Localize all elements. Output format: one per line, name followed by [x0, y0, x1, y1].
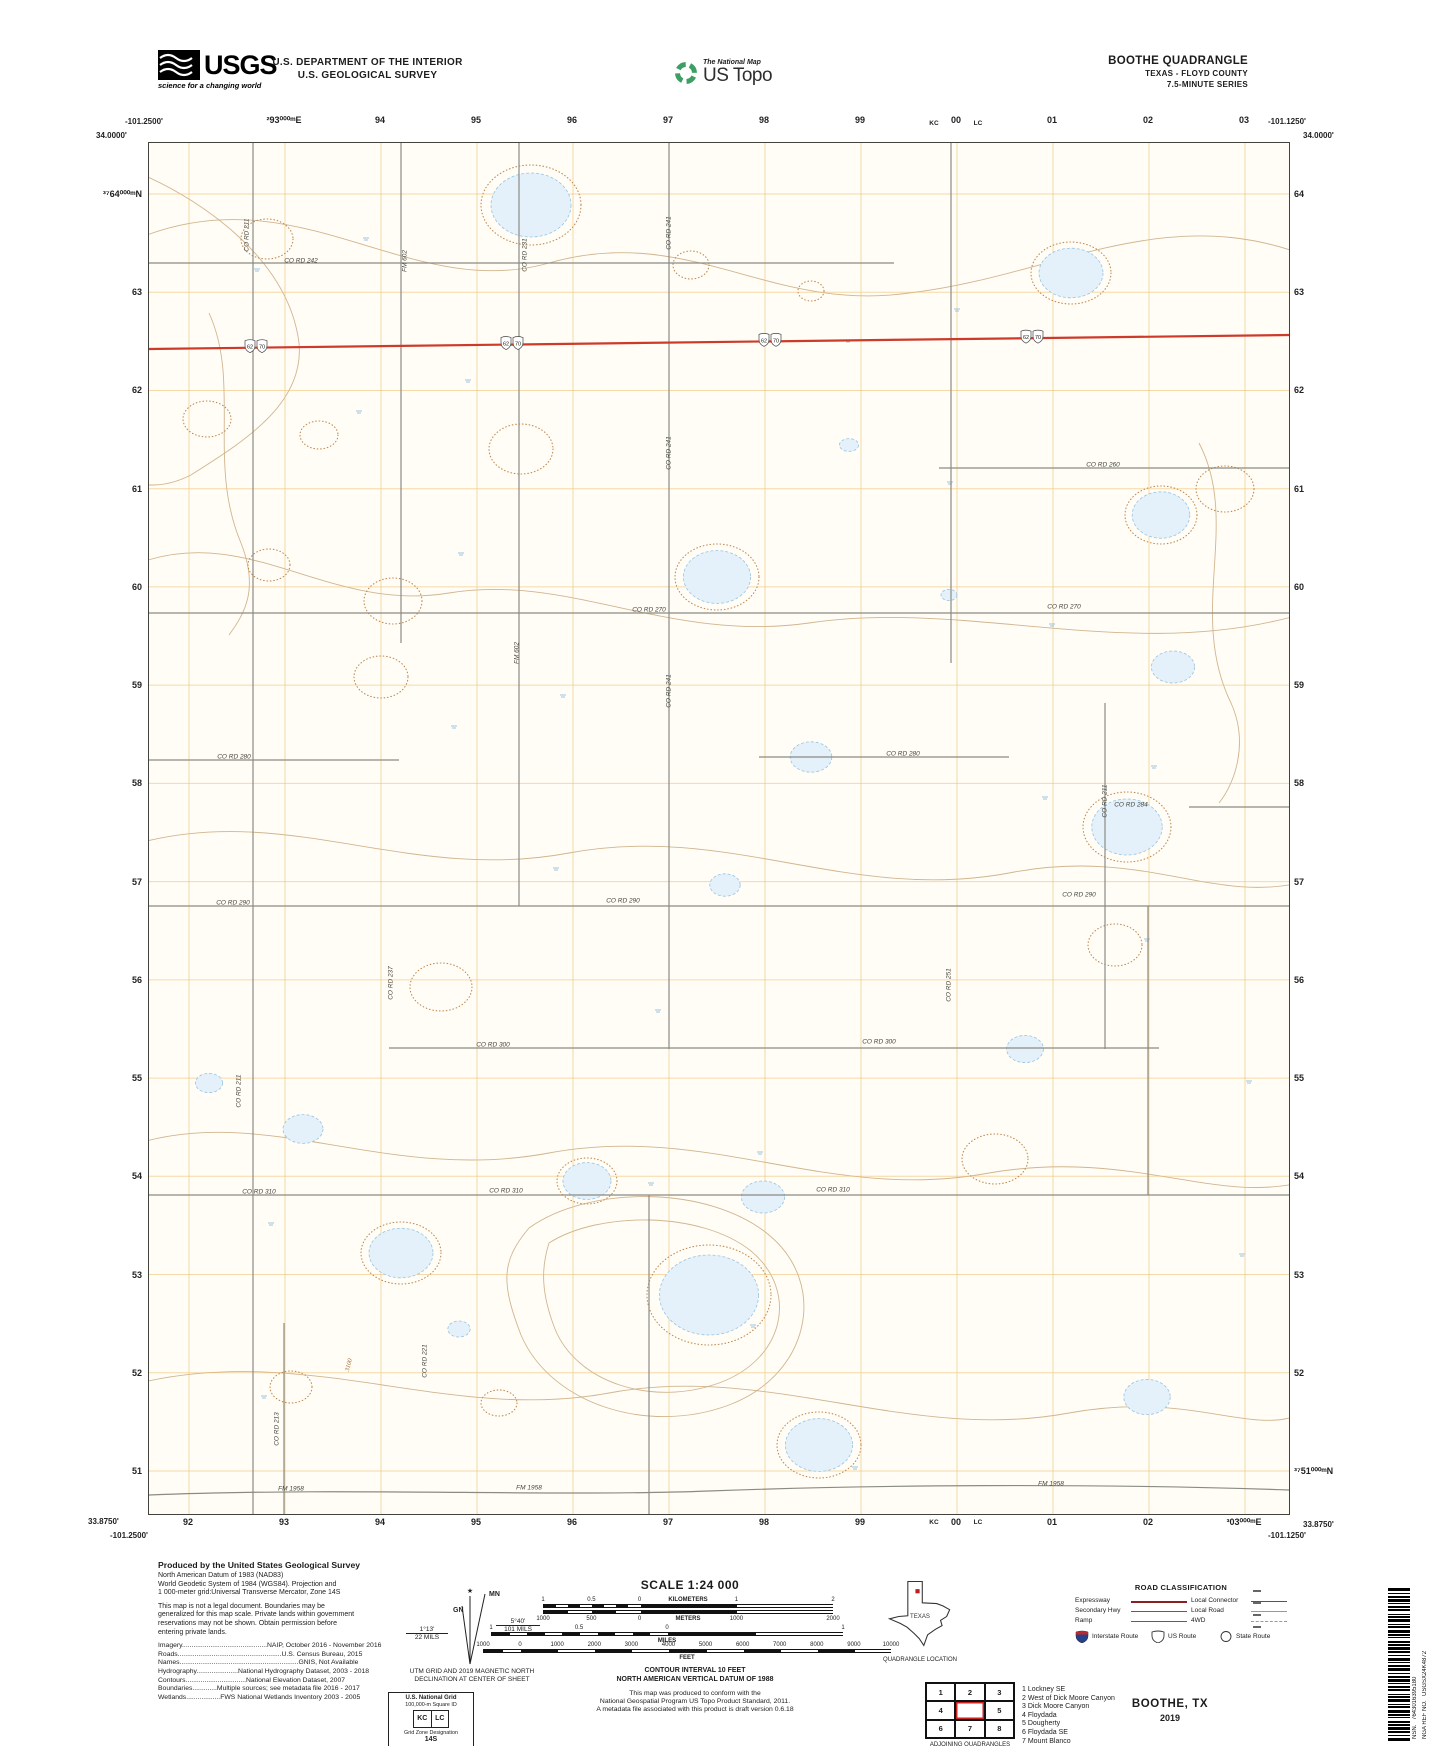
corner-top-right-lon: -101.1250' [1268, 117, 1306, 126]
scale-bar-segment [668, 1633, 756, 1635]
scale-bar-segment [568, 1611, 592, 1613]
grid-label-easting-top: 98 [759, 115, 769, 125]
scale-bar-label: 1 [489, 1625, 492, 1631]
produced-title: Produced by the United States Geological… [158, 1560, 460, 1570]
road-label: CO RD 211 [244, 218, 251, 251]
quad-title: BOOTHE QUADRANGLE [1026, 55, 1248, 67]
grid-label-northing-right: 64 [1294, 189, 1304, 199]
scale-bar-segment [521, 1650, 558, 1652]
grid-label-easting-bottom: 95 [471, 1517, 481, 1527]
nsn-text: NSN. 7643016395180 [1412, 1588, 1418, 1742]
road-label: CO RD 270 [632, 607, 666, 614]
grid-label-easting-bottom: 98 [759, 1517, 769, 1527]
road-class-right-label: 4WD [1191, 1617, 1205, 1624]
grid-label-northing-left: 56 [60, 975, 142, 985]
gn-label: GN [453, 1607, 464, 1614]
scale-bar-label: 2000 [588, 1642, 601, 1648]
grid-label-northing-left: ³⁷64⁰⁰⁰ᵐN [60, 189, 142, 200]
scale-bar-segment [580, 1633, 598, 1635]
corner-top-left-lat: 34.0000' [96, 131, 127, 140]
scale-bar-segment [556, 1605, 568, 1607]
scale-bar-label: 6000 [736, 1642, 749, 1648]
road-label: CO RD 280 [217, 754, 251, 761]
scale-bar [491, 1632, 843, 1636]
usng-title: U.S. National Grid [391, 1695, 471, 1701]
scale-bar [483, 1649, 891, 1653]
grid-label-easting-top: 96 [567, 115, 577, 125]
scale-bar-segment [595, 1650, 632, 1652]
road-label: FM 602 [402, 250, 409, 272]
road-label: CO RD 260 [1086, 462, 1120, 469]
grid-label-easting-bottom: 02 [1143, 1517, 1153, 1527]
route-shield-item: Interstate Route [1075, 1630, 1138, 1643]
grid-label-northing-right: ³⁷51⁰⁰⁰ᵐN [1294, 1466, 1333, 1477]
scale-bar-segment [562, 1633, 580, 1635]
adjoining-quad-cell [955, 1701, 984, 1719]
vertical-datum-line: NORTH AMERICAN VERTICAL DATUM OF 1988 [550, 1676, 840, 1685]
road-label: CO RD 300 [862, 1039, 896, 1046]
square-id-label-top: LC [974, 120, 983, 127]
scale-bar-label: 0 [665, 1625, 668, 1631]
contour-elevation-label: 3100 [344, 1358, 354, 1372]
map-label-layer: CO RD 242CO RD 211FM 602CO RD 231CO RD 2… [149, 143, 1289, 1514]
scale-bar-segment [604, 1605, 616, 1607]
square-id-label-bottom: KC [929, 1519, 938, 1526]
grid-label-northing-left: 63 [60, 287, 142, 297]
state-locator: TEXAS QUADRANGLE LOCATION [862, 1580, 978, 1663]
scale-bar-segment [737, 1605, 834, 1607]
road-label: CO RD 300 [476, 1042, 510, 1049]
scale-bar-label: 2000 [826, 1616, 839, 1622]
scale-bar-segment [544, 1611, 568, 1613]
quad-location-marker [915, 1589, 919, 1593]
usng-gzd-value: 14S [391, 1736, 471, 1743]
svg-text:★: ★ [467, 1587, 473, 1595]
grid-label-northing-right: 55 [1294, 1073, 1304, 1083]
grid-label-easting-top: 94 [375, 115, 385, 125]
road-class-left-line [1131, 1621, 1187, 1622]
scale-bar-label: 0 [518, 1642, 521, 1648]
adjoining-quad-cell: 4 [926, 1701, 955, 1719]
scale-bar-label: 0.5 [587, 1597, 595, 1603]
datum-line: North American Datum of 1983 (NAD83) [158, 1572, 460, 1581]
road-class-right-label: Local Road [1191, 1607, 1224, 1614]
corner-top-right-lat: 34.0000' [1303, 131, 1334, 140]
scale-bar-segment [737, 1611, 834, 1613]
adjoining-caption: ADJOINING QUADRANGLES [905, 1742, 1035, 1746]
scale-bar-segment [492, 1633, 510, 1635]
scale-bar-label: 1000 [476, 1642, 489, 1648]
scale-bar-segment [756, 1633, 844, 1635]
scale-bar-label: 0 [638, 1616, 641, 1622]
grid-label-northing-left: 54 [60, 1171, 142, 1181]
route-shield-item: State Route [1219, 1630, 1270, 1643]
scale-bar [543, 1610, 833, 1614]
map-graphic [1076, 1631, 1088, 1635]
adjoining-quad-cell: 2 [955, 1683, 984, 1701]
scale-bar-segment [580, 1605, 592, 1607]
adjoining-quad-cell: 3 [985, 1683, 1014, 1701]
grid-label-easting-bottom: 92 [183, 1517, 193, 1527]
usgs-tagline: science for a changing world [158, 81, 277, 90]
gn-angle: 1°13' 22 MILS [406, 1626, 448, 1641]
scale-bar-unit: FEET [676, 1655, 697, 1661]
route-shield-item: US Route [1151, 1630, 1196, 1643]
usng-subtitle: 100,000-m Square ID [391, 1702, 471, 1708]
road-class-row: Secondary HwyLocal Road [1075, 1607, 1287, 1617]
scale-bar-segment [527, 1633, 545, 1635]
grid-label-northing-right: 63 [1294, 287, 1304, 297]
scale-bar-segment [510, 1633, 528, 1635]
grid-label-northing-right: 59 [1294, 680, 1304, 690]
sheet-title-block: BOOTHE, TX 2019 [1085, 1698, 1255, 1723]
grid-label-easting-top: 97 [663, 115, 673, 125]
state-route-circle-icon [1219, 1630, 1233, 1643]
trim-mark [1253, 1626, 1261, 1628]
road-label: CO RD 290 [1062, 892, 1096, 899]
scale-bar-label: 1 [541, 1597, 544, 1603]
adjoining-quad-cell: 8 [985, 1720, 1014, 1738]
road-label: FM 1958 [1038, 1481, 1064, 1488]
adjoining-quad-name: 7 Mount Blanco [1022, 1738, 1115, 1746]
road-label: CO RD 251 [946, 968, 953, 1002]
adjoining-quad-grid: 12345678 [925, 1682, 1015, 1739]
road-label: CO RD 242 [284, 258, 318, 265]
road-class-right-line [1251, 1621, 1287, 1622]
interstate-shield-icon [1075, 1630, 1089, 1643]
adjoining-quad-cell: 6 [926, 1720, 955, 1738]
scale-bar-segment [568, 1605, 580, 1607]
scale-bar-segment [818, 1650, 855, 1652]
product-standard-line: This map was produced to conform with th… [520, 1690, 870, 1698]
road-label: FM 1958 [278, 1486, 304, 1493]
grid-label-northing-left: 58 [60, 778, 142, 788]
scale-bar-segment [558, 1650, 595, 1652]
grid-label-easting-top: 03 [1239, 115, 1249, 125]
scale-bar-label: 4000 [662, 1642, 675, 1648]
product-standard-note: This map was produced to conform with th… [520, 1690, 870, 1715]
barcode [1388, 1588, 1410, 1742]
grid-label-northing-left: 60 [60, 582, 142, 592]
grid-label-northing-right: 60 [1294, 582, 1304, 592]
road-label: FM 1958 [516, 1485, 542, 1492]
grid-label-easting-top: 01 [1047, 115, 1057, 125]
quad-series: 7.5-MINUTE SERIES [1026, 80, 1248, 89]
road-label: CO RD 280 [886, 751, 920, 758]
trim-mark [1253, 1602, 1261, 1604]
road-label: CO RD 221 [422, 1344, 429, 1378]
adjoining-quad-cell: 1 [926, 1683, 955, 1701]
grid-label-northing-left: 52 [60, 1368, 142, 1378]
grid-label-northing-left: 51 [60, 1466, 142, 1476]
trim-mark [1253, 1590, 1261, 1592]
grid-label-easting-bottom: ³03⁰⁰⁰ᵐE [1227, 1517, 1262, 1528]
grid-label-northing-right: 56 [1294, 975, 1304, 985]
product-standard-line: A metadata file associated with this pro… [520, 1706, 870, 1714]
road-label: CO RD 290 [606, 898, 640, 905]
scale-bar-segment [633, 1633, 651, 1635]
scale-bar-segment [669, 1650, 706, 1652]
gn-angle-value: 1°13' [406, 1626, 448, 1633]
grid-label-northing-left: 61 [60, 484, 142, 494]
corner-bottom-left-lon: -101.2500' [110, 1531, 148, 1540]
scale-bar-segment [641, 1605, 738, 1607]
scale-bar-segment [544, 1605, 556, 1607]
road-label: CO RD 310 [489, 1188, 523, 1195]
scale-bar-label: 2 [831, 1597, 834, 1603]
road-label: CO RD 241 [666, 674, 673, 708]
grid-label-northing-right: 58 [1294, 778, 1304, 788]
grid-label-easting-bottom: 01 [1047, 1517, 1057, 1527]
scale-bar-unit: KILOMETERS [665, 1597, 710, 1603]
quadrangle-location-caption: QUADRANGLE LOCATION [862, 1657, 978, 1663]
scale-bar-label: 0.5 [575, 1625, 583, 1631]
grid-label-northing-right: 61 [1294, 484, 1304, 494]
sheet-name: BOOTHE, TX [1085, 1698, 1255, 1710]
usng-square-diagram: KC LC [413, 1710, 449, 1728]
road-label: CO RD 241 [666, 436, 673, 470]
scale-bar-label: 5000 [699, 1642, 712, 1648]
grid-label-easting-bottom: 94 [375, 1517, 385, 1527]
scale-bar-label: 500 [586, 1616, 596, 1622]
road-class-left-label: Secondary Hwy [1075, 1607, 1121, 1614]
scale-bar-segment [598, 1633, 616, 1635]
scale-bar-segment [641, 1611, 738, 1613]
scale-bar-label: 1000 [730, 1616, 743, 1622]
corner-bottom-right-lat: 33.8750' [1303, 1520, 1334, 1529]
grid-label-easting-bottom: 96 [567, 1517, 577, 1527]
road-label: CO RD 237 [388, 966, 395, 1000]
scale-bar-segment [744, 1650, 781, 1652]
nga-ref-value: USGSX24K4872 [1422, 1651, 1428, 1696]
usng-box: U.S. National Grid 100,000-m Square ID K… [388, 1692, 474, 1746]
grid-label-northing-right: 57 [1294, 877, 1304, 887]
contour-interval-line: CONTOUR INTERVAL 10 FEET [550, 1667, 840, 1676]
nsn-value: 7643016395180 [1412, 1677, 1418, 1720]
grid-label-northing-right: 54 [1294, 1171, 1304, 1181]
scale-bar-segment [781, 1650, 818, 1652]
adjoining-quad-cell: 7 [955, 1720, 984, 1738]
product-standard-line: National Geospatial Program US Topo Prod… [520, 1698, 870, 1706]
nga-ref-label: NGA REF NO. [1422, 1700, 1428, 1739]
usng-square-id-west: KC [414, 1711, 432, 1727]
grid-label-easting-top: ²93⁰⁰⁰ᵐE [267, 115, 302, 126]
scale-bar-segment [650, 1633, 668, 1635]
route-shield-label: Interstate Route [1092, 1633, 1138, 1640]
road-label: CO RD 211 [236, 1074, 243, 1107]
scale-title: SCALE 1:24 000 [585, 1578, 795, 1592]
grid-label-easting-top: 02 [1143, 115, 1153, 125]
grid-label-easting-bottom: 97 [663, 1517, 673, 1527]
grid-label-northing-left: 53 [60, 1270, 142, 1280]
map-graphic [1221, 1632, 1231, 1642]
us-topo-map-sheet: USGS science for a changing world U.S. D… [0, 0, 1445, 1746]
road-label: CO RD 310 [816, 1187, 850, 1194]
road-class-right-line [1251, 1611, 1287, 1612]
route-shield-label: US Route [1168, 1633, 1196, 1640]
texas-outline: TEXAS [862, 1580, 978, 1650]
route-shield-label: State Route [1236, 1633, 1270, 1640]
gn-angle-mils: 22 MILS [406, 1633, 448, 1641]
scale-bar-segment [615, 1633, 633, 1635]
trim-mark [1253, 1614, 1261, 1616]
road-label: CO RD 211 [1102, 784, 1109, 817]
adjoining-quad-name: 1 Lockney SE [1022, 1686, 1115, 1695]
usgs-wave-icon [158, 50, 200, 80]
dept-line1: U.S. DEPARTMENT OF THE INTERIOR [250, 56, 485, 69]
road-class-left-label: Ramp [1075, 1617, 1092, 1624]
scale-bar-segment [592, 1611, 616, 1613]
grid-label-northing-right: 52 [1294, 1368, 1304, 1378]
road-label: CO RD 231 [522, 238, 529, 272]
adjoining-quad-cell: 5 [985, 1701, 1014, 1719]
dept-line2: U.S. GEOLOGICAL SURVEY [250, 69, 485, 82]
contour-interval-note: CONTOUR INTERVAL 10 FEET NORTH AMERICAN … [550, 1667, 840, 1684]
scale-bar-unit: METERS [672, 1616, 703, 1622]
corner-bottom-right-lon: -101.1250' [1268, 1531, 1306, 1540]
scale-bar-label: 9000 [847, 1642, 860, 1648]
scale-bar-segment [628, 1605, 640, 1607]
map-graphic [1152, 1631, 1164, 1643]
grid-label-easting-top: 00 [951, 115, 961, 125]
road-label: CO RD 284 [1114, 802, 1148, 809]
quadrangle-heading: BOOTHE QUADRANGLE TEXAS - FLOYD COUNTY 7… [1026, 55, 1248, 89]
corner-top-left-lon: -101.2500' [125, 117, 163, 126]
usng-square-id-east: LC [432, 1711, 449, 1727]
scale-bar [543, 1604, 833, 1608]
square-id-label-top: KC [929, 120, 938, 127]
road-label: CO RD 270 [1047, 604, 1081, 611]
scale-bar-segment [545, 1633, 563, 1635]
grid-label-northing-left: 59 [60, 680, 142, 690]
scale-bar-segment [503, 1650, 522, 1652]
road-class-right-label: Local Connector [1191, 1597, 1238, 1604]
grid-label-easting-bottom: 93 [279, 1517, 289, 1527]
scale-bars: 10.5012KILOMETERS1000500010002000METERS1… [483, 1597, 893, 1663]
scale-bar-label: 7000 [773, 1642, 786, 1648]
scale-bar-label: 1 [735, 1597, 738, 1603]
scale-bar-label: 3000 [625, 1642, 638, 1648]
grid-label-easting-bottom: 99 [855, 1517, 865, 1527]
national-map-icon [672, 58, 700, 86]
road-class-left-line [1131, 1611, 1187, 1612]
us-topo-label: US Topo [703, 66, 772, 85]
grid-label-northing-left: 55 [60, 1073, 142, 1083]
grid-label-northing-right: 62 [1294, 385, 1304, 395]
grid-label-northing-left: 62 [60, 385, 142, 395]
route-shield-legend: Interstate RouteUS RouteState Route [1075, 1630, 1287, 1644]
grid-label-northing-right: 53 [1294, 1270, 1304, 1280]
nsn-label: NSN. [1412, 1725, 1418, 1739]
grid-label-easting-top: 99 [855, 115, 865, 125]
road-class-left-label: Expressway [1075, 1597, 1110, 1604]
nga-ref-text: NGA REF NO. USGSX24K4872 [1422, 1588, 1428, 1742]
corner-bottom-left-lat: 33.8750' [88, 1517, 119, 1526]
us-route-shield-icon [1151, 1630, 1165, 1643]
sheet-year: 2019 [1085, 1713, 1255, 1723]
grid-label-northing-left: 57 [60, 877, 142, 887]
scale-bar-label: 0 [638, 1597, 641, 1603]
barcode-bar [1388, 1741, 1410, 1742]
scale-bar-segment [484, 1650, 503, 1652]
road-label: CO RD 213 [274, 1412, 281, 1446]
scale-bar-segment [707, 1650, 744, 1652]
road-class-left-line [1131, 1601, 1187, 1603]
scale-bar-label: 8000 [810, 1642, 823, 1648]
us-topo-logo: The National Map US Topo [672, 58, 772, 86]
grid-label-easting-top: 95 [471, 115, 481, 125]
state-label: TEXAS [910, 1613, 930, 1620]
scale-bar-label: 1000 [536, 1616, 549, 1622]
adjoining-quad-name: 6 Floydada SE [1022, 1729, 1115, 1738]
scale-bar-segment [616, 1611, 640, 1613]
road-label: FM 602 [514, 642, 521, 664]
scale-bar-segment [592, 1605, 604, 1607]
grid-label-easting-bottom: 00 [951, 1517, 961, 1527]
scale-bar-segment [632, 1650, 669, 1652]
scale-bar-label: 1 [841, 1625, 844, 1631]
square-id-label-bottom: LC [974, 1519, 983, 1526]
road-label: CO RD 310 [242, 1189, 276, 1196]
scale-bar-segment [616, 1605, 628, 1607]
department-heading: U.S. DEPARTMENT OF THE INTERIOR U.S. GEO… [250, 56, 485, 82]
scale-bar-label: 1000 [550, 1642, 563, 1648]
quad-state: TEXAS - FLOYD COUNTY [1026, 69, 1248, 78]
road-label: CO RD 290 [216, 900, 250, 907]
map-area: 6270627062706270 CO RD 242CO RD 211FM 60… [148, 142, 1290, 1515]
road-label: CO RD 241 [666, 216, 673, 250]
